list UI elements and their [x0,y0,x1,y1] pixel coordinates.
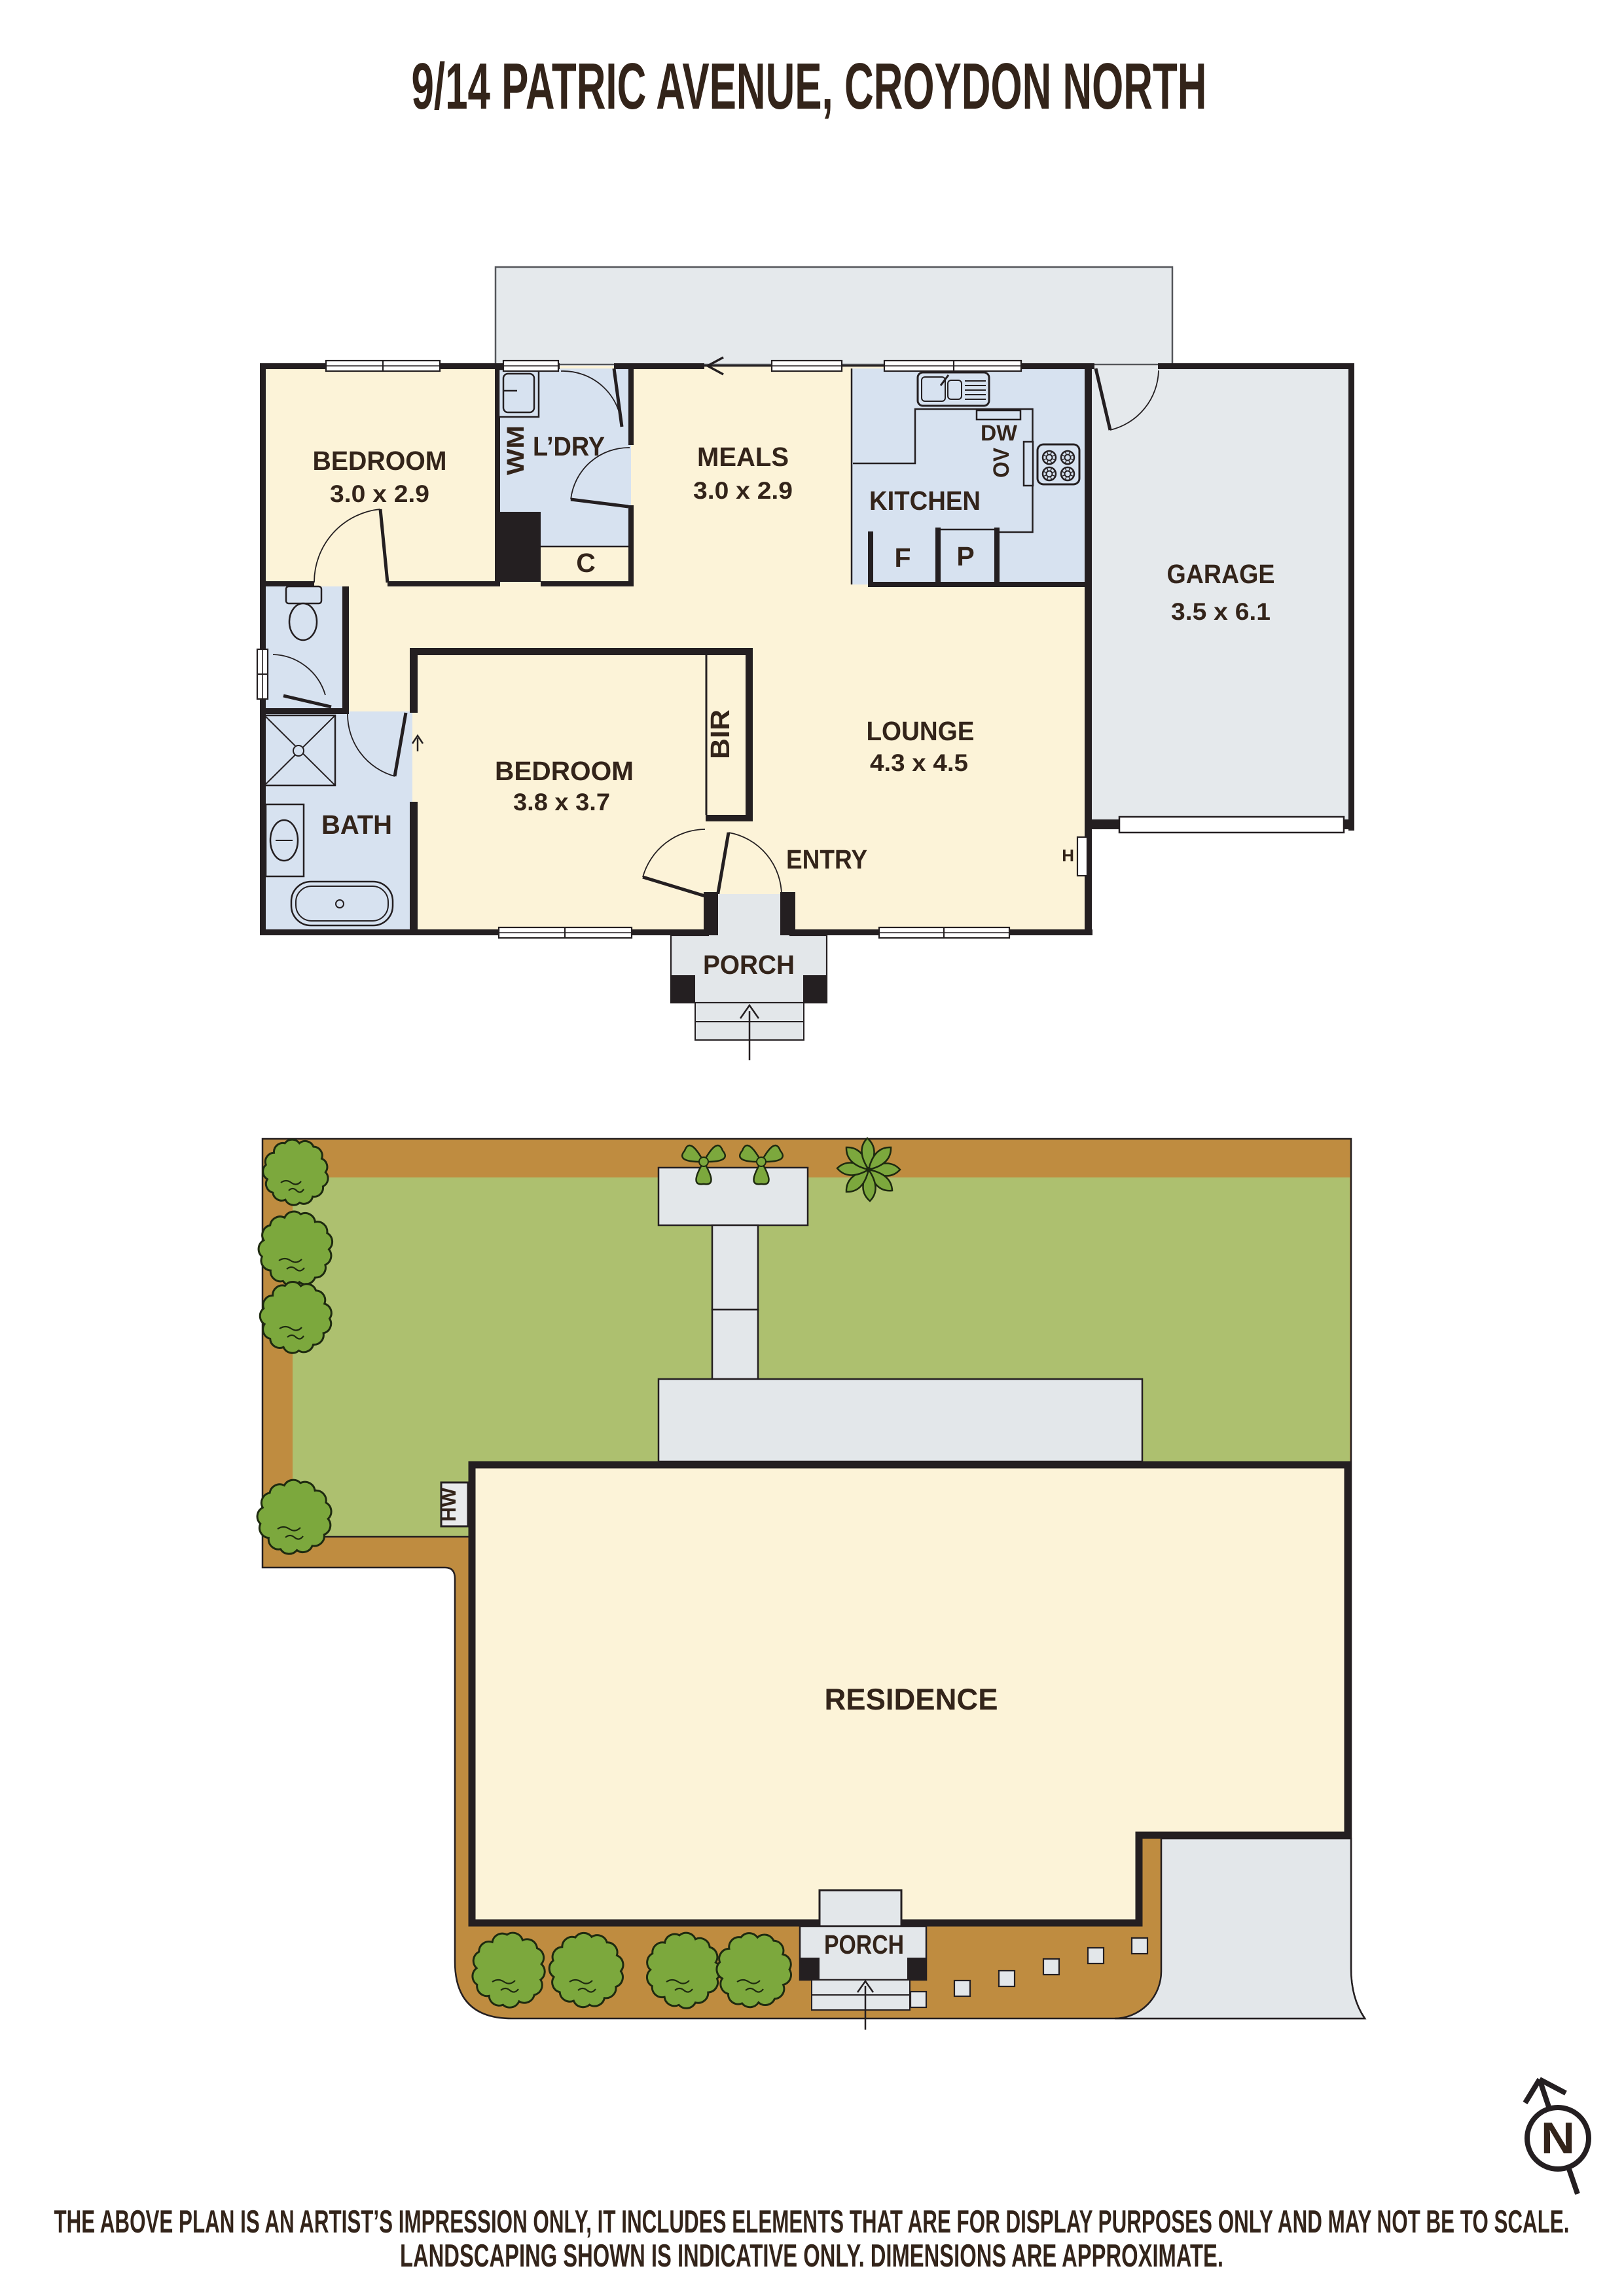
svg-text:RESIDENCE: RESIDENCE [825,1682,998,1716]
svg-text:3.5 x 6.1: 3.5 x 6.1 [1171,598,1271,625]
svg-text:OV: OV [989,448,1014,478]
svg-text:MEALS: MEALS [697,442,789,472]
svg-text:3.0 x 2.9: 3.0 x 2.9 [693,477,793,504]
svg-text:N: N [1541,2113,1575,2163]
svg-text:P: P [956,541,974,571]
svg-text:9/14 PATRIC AVENUE, CROYDON NO: 9/14 PATRIC AVENUE, CROYDON NORTH [412,50,1207,123]
svg-text:GARAGE: GARAGE [1167,559,1275,589]
svg-text:DW: DW [981,421,1018,446]
svg-text:PORCH: PORCH [703,950,795,980]
svg-text:BIR: BIR [705,709,735,759]
svg-text:F: F [894,543,911,573]
svg-text:4.3 x 4.5: 4.3 x 4.5 [870,749,968,776]
svg-text:PORCH: PORCH [824,1929,904,1960]
svg-text:WM: WM [502,425,529,475]
svg-text:KITCHEN: KITCHEN [869,486,981,516]
svg-text:LOUNGE: LOUNGE [867,716,975,746]
svg-text:L’DRY: L’DRY [533,431,605,461]
svg-text:3.0 x 2.9: 3.0 x 2.9 [330,480,429,507]
svg-text:LANDSCAPING SHOWN IS INDICATIV: LANDSCAPING SHOWN IS INDICATIVE ONLY. DI… [400,2238,1223,2274]
svg-text:H: H [1062,846,1074,865]
svg-text:BEDROOM: BEDROOM [495,756,634,786]
svg-text:C: C [576,548,596,578]
svg-text:BATH: BATH [321,810,392,840]
svg-text:HW: HW [437,1487,460,1522]
svg-text:THE ABOVE PLAN IS AN ARTIST’S: THE ABOVE PLAN IS AN ARTIST’S IMPRESSION… [54,2204,1570,2240]
svg-text:3.8 x 3.7: 3.8 x 3.7 [513,789,610,816]
svg-text:ENTRY: ENTRY [786,844,867,874]
svg-text:BEDROOM: BEDROOM [313,446,447,476]
